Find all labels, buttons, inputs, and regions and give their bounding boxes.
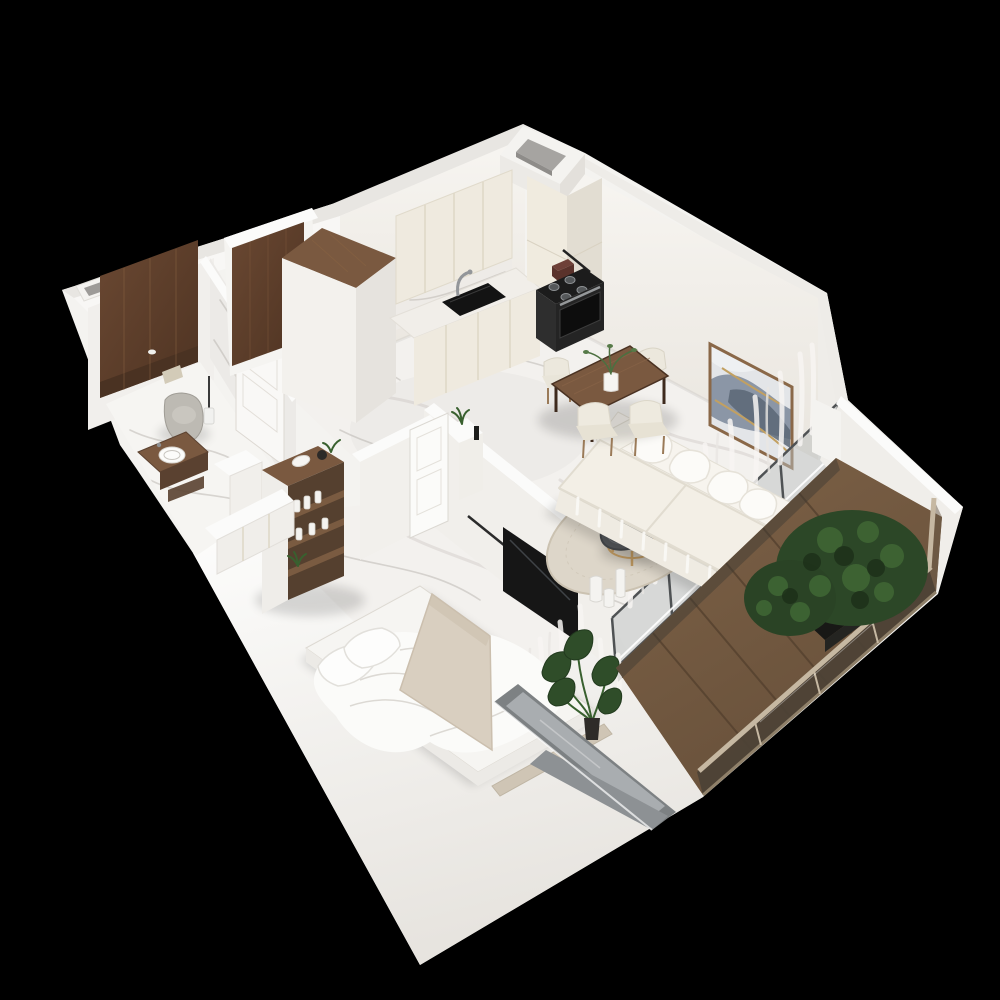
plant-pot [584, 718, 600, 740]
top-bowl [317, 450, 327, 460]
candle [474, 426, 479, 440]
floorplan-stage [0, 0, 1000, 1000]
vessel-sink [159, 447, 185, 463]
apartment-render [0, 0, 1000, 1000]
bedroom-door [410, 413, 448, 538]
shelf-decor [148, 350, 156, 355]
faucet-icon [157, 443, 161, 447]
walnut-topped-wardrobe [282, 228, 396, 423]
